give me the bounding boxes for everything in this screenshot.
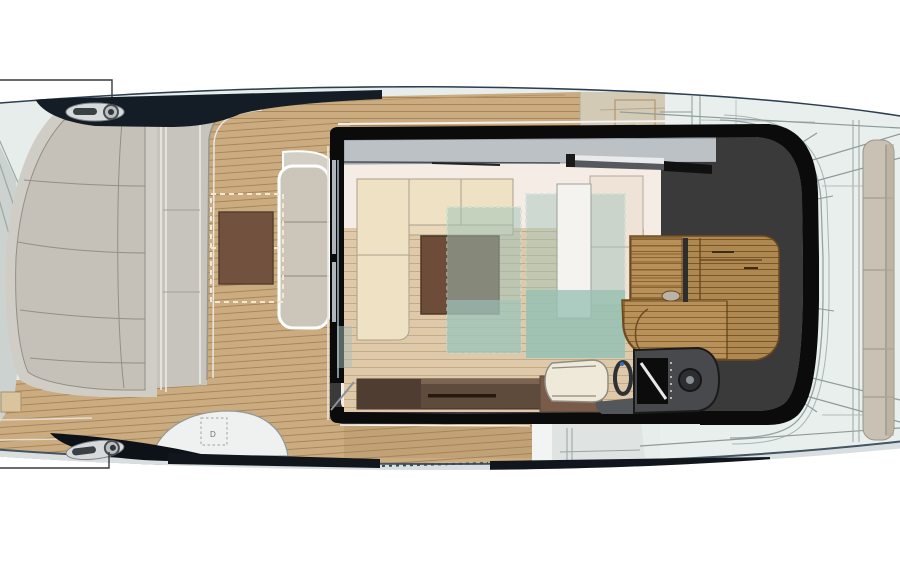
svg-text:D: D — [210, 430, 216, 439]
